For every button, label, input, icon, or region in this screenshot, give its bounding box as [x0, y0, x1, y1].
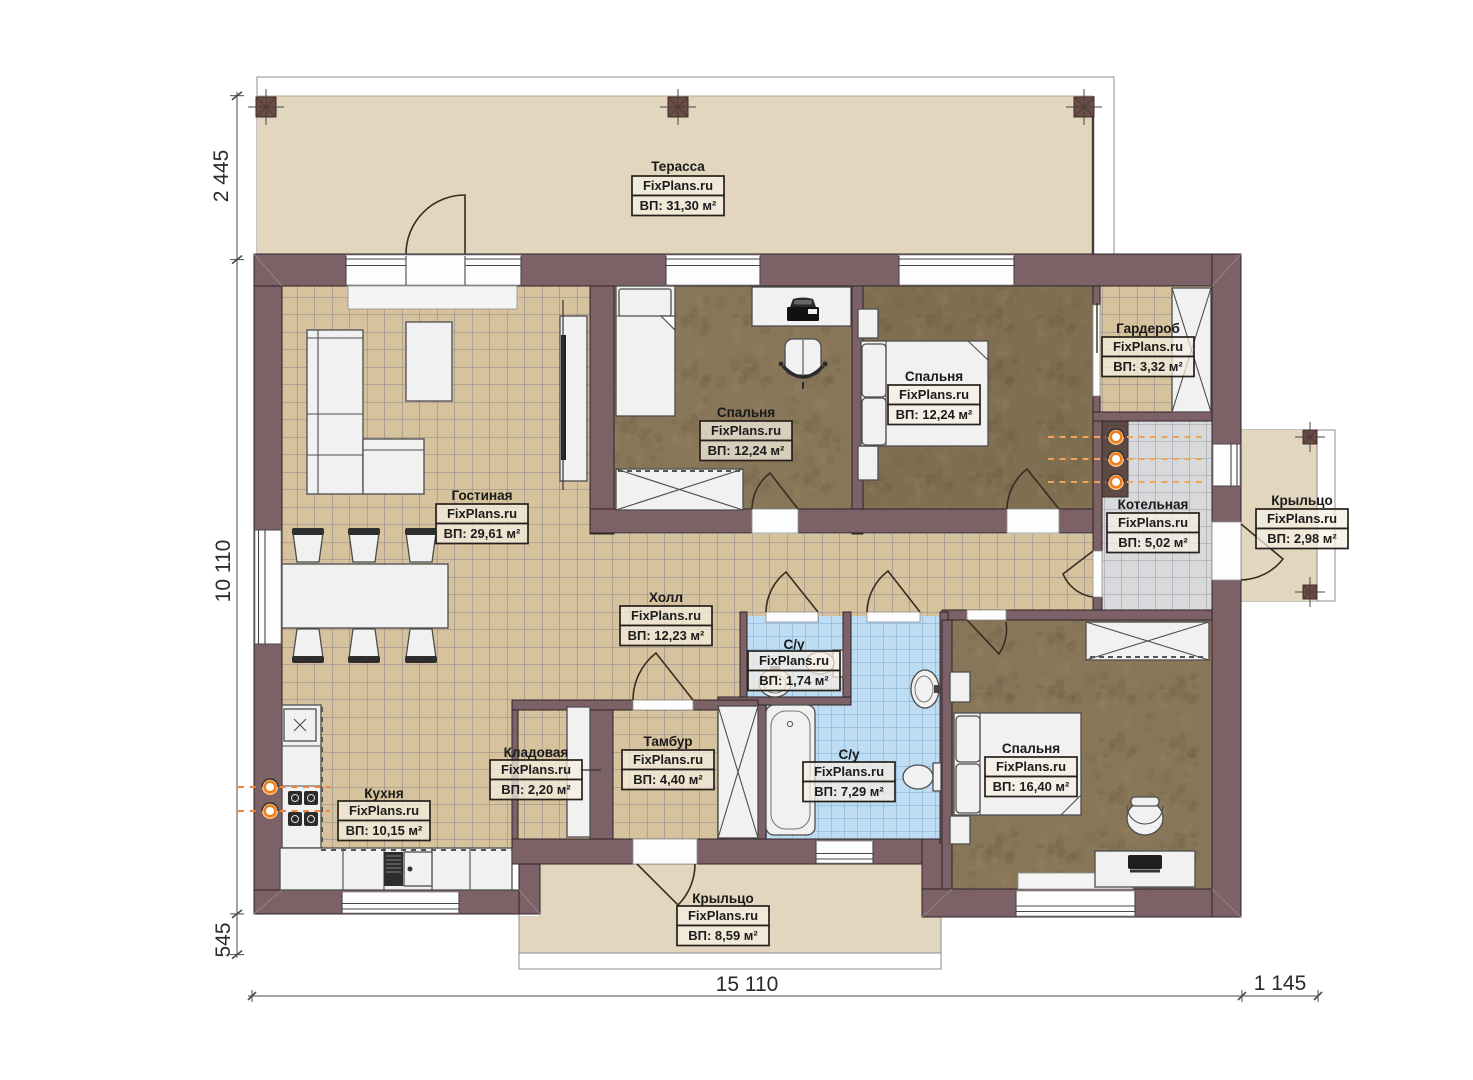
svg-text:Спальня: Спальня [1002, 741, 1060, 756]
svg-text:FixPlans.ru: FixPlans.ru [1118, 515, 1188, 530]
svg-text:ВП: 12,24 м²: ВП: 12,24 м² [708, 443, 785, 458]
svg-text:FixPlans.ru: FixPlans.ru [1267, 511, 1337, 526]
svg-text:Спальня: Спальня [717, 405, 775, 420]
svg-text:FixPlans.ru: FixPlans.ru [633, 752, 703, 767]
svg-text:ВП: 2,20 м²: ВП: 2,20 м² [501, 782, 571, 797]
svg-text:Тамбур: Тамбур [644, 734, 693, 749]
svg-text:ВП: 7,29 м²: ВП: 7,29 м² [814, 784, 884, 799]
svg-text:ВП: 29,61 м²: ВП: 29,61 м² [444, 526, 521, 541]
svg-text:FixPlans.ru: FixPlans.ru [643, 178, 713, 193]
svg-text:ВП: 3,32 м²: ВП: 3,32 м² [1113, 359, 1183, 374]
svg-text:С/у: С/у [783, 637, 805, 652]
svg-text:FixPlans.ru: FixPlans.ru [899, 387, 969, 402]
svg-text:ВП: 4,40 м²: ВП: 4,40 м² [633, 772, 703, 787]
svg-text:ВП: 10,15 м²: ВП: 10,15 м² [346, 823, 423, 838]
svg-text:FixPlans.ru: FixPlans.ru [688, 908, 758, 923]
svg-text:FixPlans.ru: FixPlans.ru [1113, 339, 1183, 354]
svg-text:С/у: С/у [838, 747, 860, 762]
svg-text:FixPlans.ru: FixPlans.ru [631, 608, 701, 623]
svg-text:10 110: 10 110 [212, 540, 235, 603]
svg-text:1 145: 1 145 [1254, 972, 1307, 995]
svg-text:15 110: 15 110 [716, 973, 779, 996]
svg-text:ВП: 8,59 м²: ВП: 8,59 м² [688, 928, 758, 943]
svg-text:ВП: 5,02 м²: ВП: 5,02 м² [1118, 535, 1188, 550]
svg-text:Холл: Холл [649, 590, 683, 605]
svg-text:FixPlans.ru: FixPlans.ru [711, 423, 781, 438]
svg-text:FixPlans.ru: FixPlans.ru [501, 762, 571, 777]
svg-text:ВП: 2,98 м²: ВП: 2,98 м² [1267, 531, 1337, 546]
svg-text:Крыльцо: Крыльцо [1271, 493, 1332, 508]
svg-text:545: 545 [212, 922, 235, 957]
svg-text:Кухня: Кухня [364, 786, 403, 801]
svg-text:ВП: 1,74 м²: ВП: 1,74 м² [759, 673, 829, 688]
svg-text:Гардероб: Гардероб [1116, 321, 1180, 336]
svg-text:FixPlans.ru: FixPlans.ru [349, 803, 419, 818]
svg-text:FixPlans.ru: FixPlans.ru [814, 764, 884, 779]
svg-text:Гостиная: Гостиная [451, 488, 512, 503]
svg-text:Кладовая: Кладовая [504, 745, 569, 760]
svg-text:Спальня: Спальня [905, 369, 963, 384]
svg-text:2 445: 2 445 [210, 150, 233, 203]
svg-text:Терасса: Терасса [651, 159, 705, 174]
svg-text:ВП: 12,24 м²: ВП: 12,24 м² [896, 407, 973, 422]
svg-text:Котельная: Котельная [1118, 497, 1189, 512]
svg-text:ВП: 31,30 м²: ВП: 31,30 м² [640, 198, 717, 213]
svg-text:ВП: 16,40 м²: ВП: 16,40 м² [993, 779, 1070, 794]
svg-text:FixPlans.ru: FixPlans.ru [996, 759, 1066, 774]
svg-text:Крыльцо: Крыльцо [692, 891, 753, 906]
svg-text:FixPlans.ru: FixPlans.ru [447, 506, 517, 521]
svg-text:ВП: 12,23 м²: ВП: 12,23 м² [628, 628, 705, 643]
svg-text:FixPlans.ru: FixPlans.ru [759, 653, 829, 668]
